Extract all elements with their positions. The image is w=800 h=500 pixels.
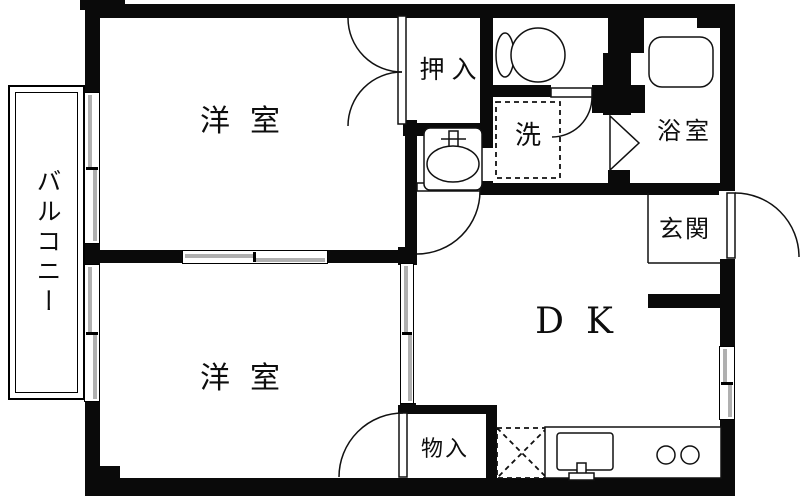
- storage-label: 物入: [406, 431, 482, 463]
- entrance-label: 玄関: [634, 209, 734, 244]
- washbasin-icon: [424, 128, 482, 190]
- balcony-label: バルコニー: [29, 118, 65, 368]
- closet-label: 押入: [408, 50, 488, 86]
- bedroom-top-label: 洋室: [140, 96, 340, 140]
- toilet-icon: [496, 28, 565, 82]
- corridor-door: [417, 183, 480, 254]
- bedroom-bottom-label: 洋室: [140, 353, 340, 397]
- closet-double-door: [348, 16, 406, 126]
- bathroom-label: 浴室: [633, 111, 733, 146]
- kitchen-counter-icon: [545, 427, 721, 480]
- refrigerator-space-icon: [497, 428, 547, 478]
- bedroom2-door: [339, 413, 407, 477]
- bathtub-icon: [649, 37, 713, 87]
- fixtures-layer: [0, 0, 800, 500]
- floorplan: バルコニー 洋室 押入 洗 浴室 玄関 DK 洋室 物入: [0, 0, 800, 500]
- laundry-label: 洗: [496, 115, 560, 152]
- dk-label: DK: [474, 301, 674, 342]
- entrance-door: [727, 193, 799, 258]
